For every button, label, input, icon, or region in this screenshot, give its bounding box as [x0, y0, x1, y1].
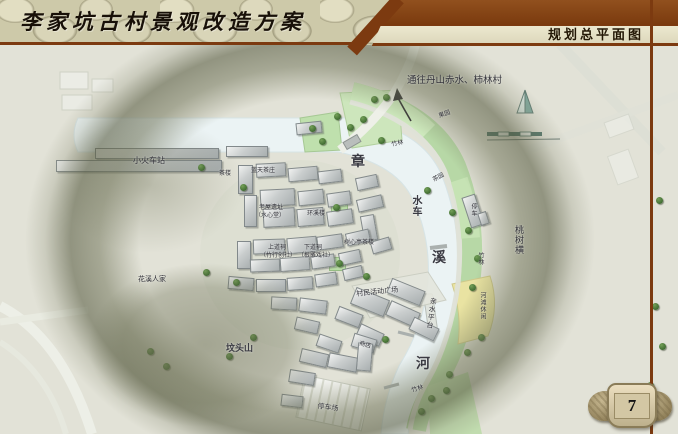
- header-brown-block: [376, 0, 678, 25]
- slide: 通往丹山赤水、柿林村小火车站茶楼蓝天茶庄老屋遗址（水心堂）环溪楼上道祠（竹行创社…: [0, 0, 678, 434]
- map-label: 上道祠: [268, 245, 286, 251]
- map-label: 亲水平台: [426, 297, 437, 330]
- map-label: 通往丹山赤水、柿林村: [407, 76, 502, 86]
- map-label: 停车: [470, 203, 476, 217]
- map-label: 水车: [410, 195, 420, 217]
- map-label: 竹林: [391, 140, 404, 148]
- page-number: 7: [628, 397, 637, 414]
- map-label: （根雕戏社）: [298, 253, 334, 259]
- emblem-plaque-inner: 7: [614, 393, 650, 419]
- map-label: 章: [351, 156, 365, 170]
- map-label: 竹林: [477, 252, 483, 266]
- map-label: （竹行创社）: [260, 253, 296, 259]
- map-labels: 通往丹山赤水、柿林村小火车站茶楼蓝天茶庄老屋遗址（水心堂）环溪楼上道祠（竹行创社…: [0, 0, 678, 434]
- map-label: 小火车站: [133, 157, 165, 165]
- map-label: （水心堂）: [255, 213, 285, 219]
- right-divider-line: [650, 0, 653, 434]
- map-label: 村民活动广场: [356, 287, 399, 298]
- page-title: 李家坑古村景观改造方案: [20, 6, 306, 36]
- title-underline: [0, 42, 362, 45]
- header: 李家坑古村景观改造方案 规划总平面图: [0, 0, 678, 45]
- map-label: 桃树横: [514, 225, 523, 255]
- master-plan-map: 通往丹山赤水、柿林村小火车站茶楼蓝天茶庄老屋遗址（水心堂）环溪楼上道祠（竹行创社…: [0, 0, 678, 434]
- map-label: 下道祠: [304, 245, 322, 251]
- map-label: 河滩休闲: [479, 292, 485, 320]
- map-label: 停车场: [317, 403, 339, 413]
- map-label: 环溪楼: [307, 211, 325, 217]
- map-label: 蓝天茶庄: [251, 168, 275, 174]
- map-label: 花溪人家: [138, 276, 166, 283]
- emblem-plaque: 7: [607, 383, 657, 428]
- map-label: 茶园: [432, 172, 445, 183]
- map-label: 竹林: [411, 385, 424, 394]
- section-band: 规划总平面图: [372, 25, 678, 46]
- map-label: 老屋遗址: [259, 205, 283, 211]
- map-label: 果园: [438, 110, 451, 120]
- map-label: 坟头山: [226, 344, 253, 353]
- section-title: 规划总平面图: [548, 28, 644, 41]
- map-label: 溪: [432, 252, 446, 266]
- map-label: 商店: [358, 341, 371, 350]
- map-label: 河: [416, 358, 430, 372]
- map-label: 树心亭茶楼: [344, 240, 374, 246]
- page-emblem: 7: [588, 380, 672, 428]
- map-label: 茶楼: [219, 171, 231, 177]
